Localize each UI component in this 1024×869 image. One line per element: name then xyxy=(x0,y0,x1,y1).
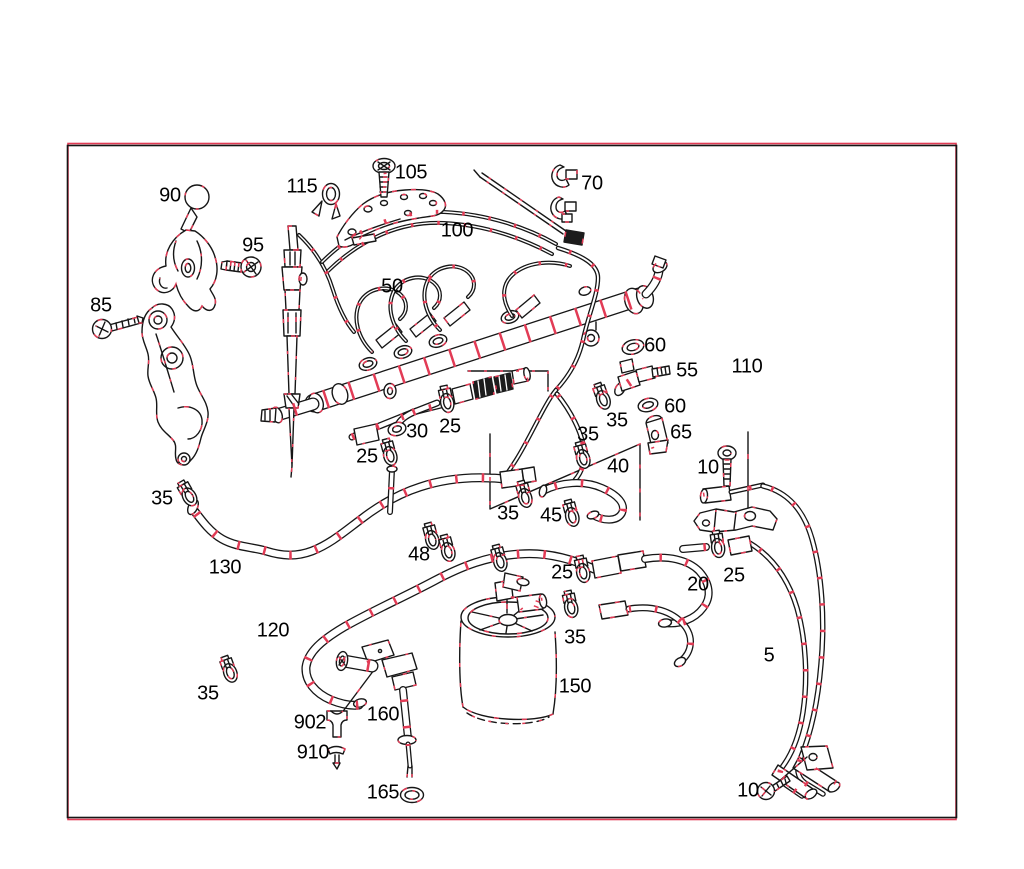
part-label-35-32: 35 xyxy=(197,683,219,706)
part-label-120-28: 120 xyxy=(257,620,289,643)
part-label-90-3: 90 xyxy=(159,185,181,208)
part-labels: 1057011590100955085605511060352530653525… xyxy=(0,0,1024,869)
part-label-25-26: 25 xyxy=(723,565,745,588)
part-label-35-20: 35 xyxy=(151,488,173,511)
part-label-95-5: 95 xyxy=(242,235,264,258)
parts-diagram-page: 1057011590100955085605511060352530653525… xyxy=(0,0,1024,869)
part-label-55-9: 55 xyxy=(676,360,698,383)
part-label-70-1: 70 xyxy=(581,173,603,196)
part-label-150-31: 150 xyxy=(559,676,591,699)
part-label-160-33: 160 xyxy=(367,704,399,727)
part-label-902-34: 902 xyxy=(294,712,326,735)
part-label-100-4: 100 xyxy=(441,220,473,243)
part-label-20-27: 20 xyxy=(687,574,709,597)
part-label-5-30: 5 xyxy=(764,645,775,668)
part-label-35-21: 35 xyxy=(497,503,519,526)
part-label-45-22: 45 xyxy=(540,505,562,528)
part-label-40-18: 40 xyxy=(607,456,629,479)
part-label-65-15: 65 xyxy=(670,422,692,445)
part-label-25-13: 25 xyxy=(439,416,461,439)
part-label-910-35: 910 xyxy=(297,742,329,765)
part-label-60-11: 60 xyxy=(664,396,686,419)
part-label-25-25: 25 xyxy=(551,562,573,585)
part-label-105-0: 105 xyxy=(395,162,427,185)
part-label-130-24: 130 xyxy=(209,557,241,580)
part-label-165-37: 165 xyxy=(367,782,399,805)
part-label-110-10: 110 xyxy=(732,356,763,379)
part-label-35-29: 35 xyxy=(564,627,586,650)
part-label-10-19: 10 xyxy=(697,457,719,480)
part-label-35-16: 35 xyxy=(577,424,599,447)
part-label-10-36: 10 xyxy=(737,780,759,803)
part-label-60-8: 60 xyxy=(644,335,666,358)
part-label-115-2: 115 xyxy=(287,176,318,199)
part-label-48-23: 48 xyxy=(408,544,430,567)
part-label-50-6: 50 xyxy=(381,276,403,299)
part-label-30-14: 30 xyxy=(406,421,428,444)
part-label-85-7: 85 xyxy=(90,295,112,318)
part-label-35-12: 35 xyxy=(606,410,628,433)
part-label-25-17: 25 xyxy=(356,446,378,469)
